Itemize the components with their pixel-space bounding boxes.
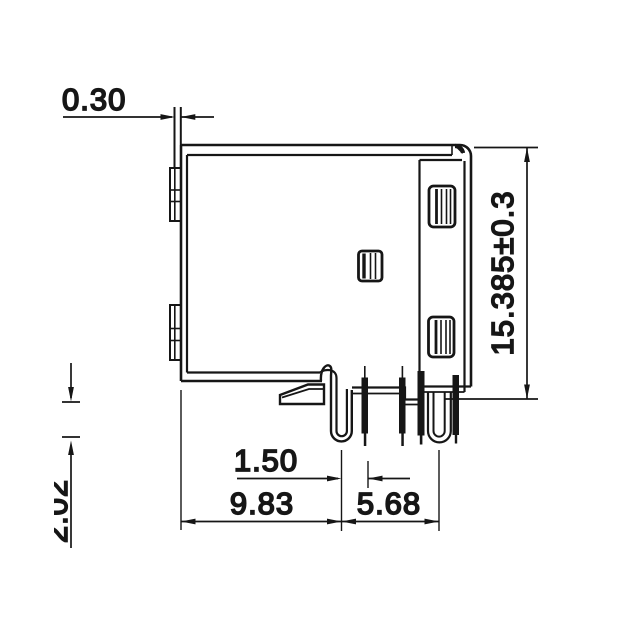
pin-3 — [399, 366, 406, 446]
arrow-right-icon — [425, 519, 440, 525]
arrow-left-icon — [181, 519, 196, 525]
pin-6 — [453, 375, 460, 444]
latch-window-lower — [429, 317, 455, 357]
arrow-right-icon — [327, 519, 342, 525]
dim-label-flange-thickness: 0.30 — [62, 82, 126, 117]
arrow-left-icon — [181, 114, 196, 120]
dimple-middle — [359, 251, 383, 281]
dim-pin-protrusion: 2.02 — [36, 363, 80, 552]
flange-tab-upper — [170, 168, 181, 221]
pcb-lock-tab — [280, 385, 324, 405]
arrow-down-icon — [524, 385, 530, 400]
arrow-left-icon — [342, 519, 357, 525]
latch-window-upper — [429, 186, 455, 227]
arrow-right-icon — [327, 476, 342, 482]
pin-2 — [362, 366, 369, 446]
dim-overall-height: 15.385±0.3 — [445, 148, 538, 400]
dim-flange-thickness: 0.30 — [62, 82, 214, 120]
latch-windows — [359, 186, 456, 357]
connector-side-view-drawing: 0.30 15.385±0.3 2.02 1.50 9.83 — [0, 0, 620, 620]
shield-flange — [170, 107, 181, 360]
dim-label-edge-to-pin1: 9.83 — [230, 486, 294, 521]
dim-label-pin-span: 5.68 — [357, 486, 421, 521]
arrow-down-icon — [68, 387, 74, 402]
dim-pin-span: 5.68 — [342, 450, 440, 531]
pin-4 — [418, 371, 425, 445]
pin-5-u — [428, 393, 451, 443]
pins — [320, 365, 459, 446]
sheet-crop-mask — [36, 472, 54, 552]
dim-label-overall-height: 15.385±0.3 — [485, 191, 520, 356]
dim-label-pin-pitch: 1.50 — [234, 443, 298, 478]
arrow-up-icon — [524, 148, 530, 163]
flange-tab-lower — [170, 305, 181, 360]
technical-drawing-canvas: 0.30 15.385±0.3 2.02 1.50 9.83 — [0, 0, 620, 620]
arrow-right-icon — [161, 114, 176, 120]
